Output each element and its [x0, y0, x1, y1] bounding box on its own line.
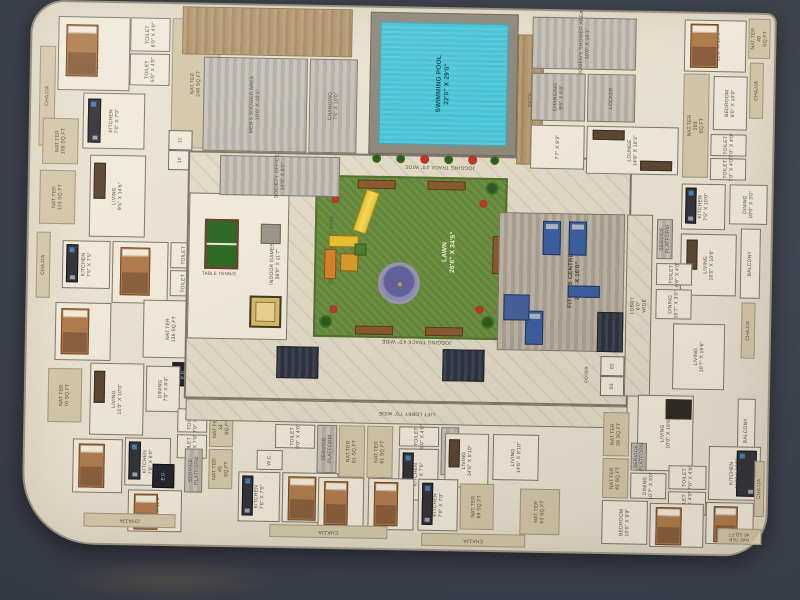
chajja-strip: CHAJJA [36, 232, 51, 298]
sofa-icon [640, 161, 672, 172]
room-toilet: TOILET 7'0" X 4'0" [710, 134, 746, 157]
shrub-icon [372, 154, 381, 163]
chajja-strip: CHAJJA [269, 524, 387, 539]
room-dining: DINING 10'0" X 3'0" [729, 184, 768, 225]
room-nat-ter: NAT.TER 83 SQ.FT [519, 489, 560, 536]
service-platform: SERVICE PLATFORM [184, 448, 203, 492]
flower-icon [420, 155, 429, 164]
changing-room-men: CHANGING 7'5" X 10'0" [308, 59, 358, 154]
sofa-icon [94, 371, 106, 403]
kitchen-counter-icon [87, 99, 101, 143]
room-dining: DINING 7'0" X 8'0" [146, 366, 181, 413]
staircase [597, 312, 624, 352]
room-toilet: TOILET 7'0" X 4'0" [668, 465, 706, 490]
playground-icon [354, 243, 366, 255]
bed-icon [373, 482, 398, 526]
bench-icon [358, 180, 396, 190]
table-tennis-label: TABLE TENNIS [194, 271, 244, 277]
chajja-strip: CHAJJA [754, 461, 765, 517]
room-nat-ter: NAT.TER 45 SQ.FT [208, 449, 233, 489]
room-77x93: 7'7" X 9'3" [530, 125, 585, 170]
service-platform: SERVICE PLATFORM [316, 425, 337, 473]
kitchen-counter-icon [66, 244, 79, 282]
fitness-centre-label: FITNESS CENTRE 24'0" X 16'0" [568, 253, 583, 308]
bed-icon [323, 481, 348, 525]
room-living: LIVING 14'6" X 8'10" [492, 434, 539, 481]
floor-plan-sheet: BEDROOM 10'0" X 10'0" TOILET 6'0" X 4'0"… [21, 0, 777, 557]
table-surface-smudge [60, 560, 280, 600]
room-dining: DINING 10'7" X 3'0" [630, 473, 666, 500]
foyer-label: FOYER [584, 366, 590, 383]
games-table-icon [261, 224, 281, 244]
room-nat-ter: NAT.TER 46 SQ.FT [717, 528, 761, 545]
room-nat-ter: NAT.TER 45 SQ.FT [602, 458, 629, 498]
shrub-icon [444, 155, 453, 164]
service-platform: SERVICE PLATFORM [631, 443, 648, 471]
bed-icon [288, 476, 317, 521]
staircase [442, 349, 485, 382]
bed-icon [655, 507, 682, 545]
wood-deck [182, 6, 353, 57]
room-nat-ter: NAT.TER 48 SQ.FT [748, 19, 771, 59]
room-nat-ter: NAT.TER 69 SQ.FT [459, 483, 494, 530]
room-nat-ter: NAT.TER 108 SQ.FT [42, 118, 79, 165]
room-wc: W.C. [256, 450, 282, 470]
room-living: LIVING 10'7" X 16'6" [672, 323, 725, 390]
service-platform: SERVICE PLATFORM [656, 219, 673, 259]
bed-icon [690, 24, 719, 69]
chajja-strip: CHAJJA [749, 63, 764, 119]
balcony: BALCONY [740, 229, 761, 299]
tv-cabinet-icon [665, 399, 691, 419]
locker-room: LOCKER [587, 74, 636, 123]
bench-icon [425, 327, 463, 337]
gym-equipment-icon [503, 294, 529, 320]
sofa-icon [593, 130, 625, 141]
bed-icon [66, 24, 99, 77]
table-tennis-table-icon [204, 219, 239, 270]
photo-of-floor-plan: { "amen": { "pool": "SWIMMING POOL\n22'0… [0, 0, 800, 600]
shrub-icon [396, 154, 405, 163]
bed-icon [78, 443, 105, 487]
room-nat-ter: NAT.TER 203 SQ.FT [682, 73, 710, 177]
bench-press-icon [568, 285, 600, 298]
womens-shower-area: WOMEN'S SHOWER AREA 10'0" X 10'1" [532, 17, 637, 71]
room-toilet: TOILET 5'0" X 4'0" [129, 53, 170, 86]
sofa-icon [449, 439, 461, 467]
playground-icon [340, 253, 358, 271]
bed-icon [61, 308, 90, 355]
kitchen-counter-icon [421, 483, 433, 525]
bench-icon [428, 181, 466, 191]
room-bedroom: BEDROOM 10'0" X 9'9" [601, 500, 648, 545]
kitchen-counter-icon [242, 475, 254, 515]
lift-11: 11 [168, 130, 192, 150]
flower-icon [468, 156, 477, 165]
bench-icon [355, 325, 393, 335]
chajja-strip: CHAJJA [83, 513, 175, 529]
swimming-pool: SWIMMING POOL 22'0" X 29'0" [378, 22, 508, 146]
sofa-icon [93, 163, 106, 199]
kitchen-counter-icon [685, 188, 697, 224]
kitchen-counter-icon [128, 441, 141, 479]
room-nat-ter: NAT.TER 70 SQ.FT [47, 368, 82, 423]
room-nat-ter: NAT.TER 81 SQ.FT [366, 426, 393, 478]
chajja-strip: CHAJJA [741, 303, 756, 359]
room-nat-ter: NAT.TER 39 SQ.FT [603, 412, 630, 456]
lawn-label: LAWN 26'6" X 34'5" [441, 231, 457, 273]
lobby-strip: LOBBY 6'0" WIDE [624, 214, 653, 396]
room-dining: DINING 10'7" X 3'0" [655, 289, 692, 320]
treadmill-icon [542, 221, 561, 255]
room-toilet: TOILET 6'8" X 4'0" [656, 263, 692, 286]
room-toilet: TOILET 7'0" X 4'0" [710, 158, 746, 181]
room-toilet: TOILET 6'0" X 4'0" [399, 426, 439, 447]
mens-shower-area: MEN'S SHOWER AREA 10'0" X 10'1" [202, 57, 308, 153]
room-nat-ter: NAT.TER 113 SQ.FT [39, 170, 76, 225]
room-bedroom: BEDROOM 9'0" X 10'0" [713, 76, 748, 131]
bed-icon [120, 247, 151, 296]
playground-icon [324, 249, 337, 279]
room-toilet: TOILET 6'0" X 4'0" [130, 17, 171, 52]
staircase [276, 346, 319, 379]
society-office: SOCIETY OFFICE 14'0" X 8'0" [219, 155, 340, 197]
room-nat-ter: NAT.TER 81 SQ.FT [338, 425, 365, 477]
indoor-games-label: INDOOR GAMES 38'0" X 11'7" [269, 243, 282, 285]
treadmill-icon [568, 221, 587, 255]
chajja-strip: CHAJJA [421, 533, 525, 548]
room-toilet: TOILET 8'0" X 4'0" [275, 424, 315, 449]
lift-03: 03 [600, 376, 624, 396]
shrub-icon [490, 156, 499, 165]
carrom-board-icon [249, 296, 282, 329]
electrical-duct: E.D. [152, 464, 174, 488]
changing-room-women: CHANGING 9'5" X 6'8" [531, 73, 586, 122]
lift-02: 02 [600, 356, 624, 376]
